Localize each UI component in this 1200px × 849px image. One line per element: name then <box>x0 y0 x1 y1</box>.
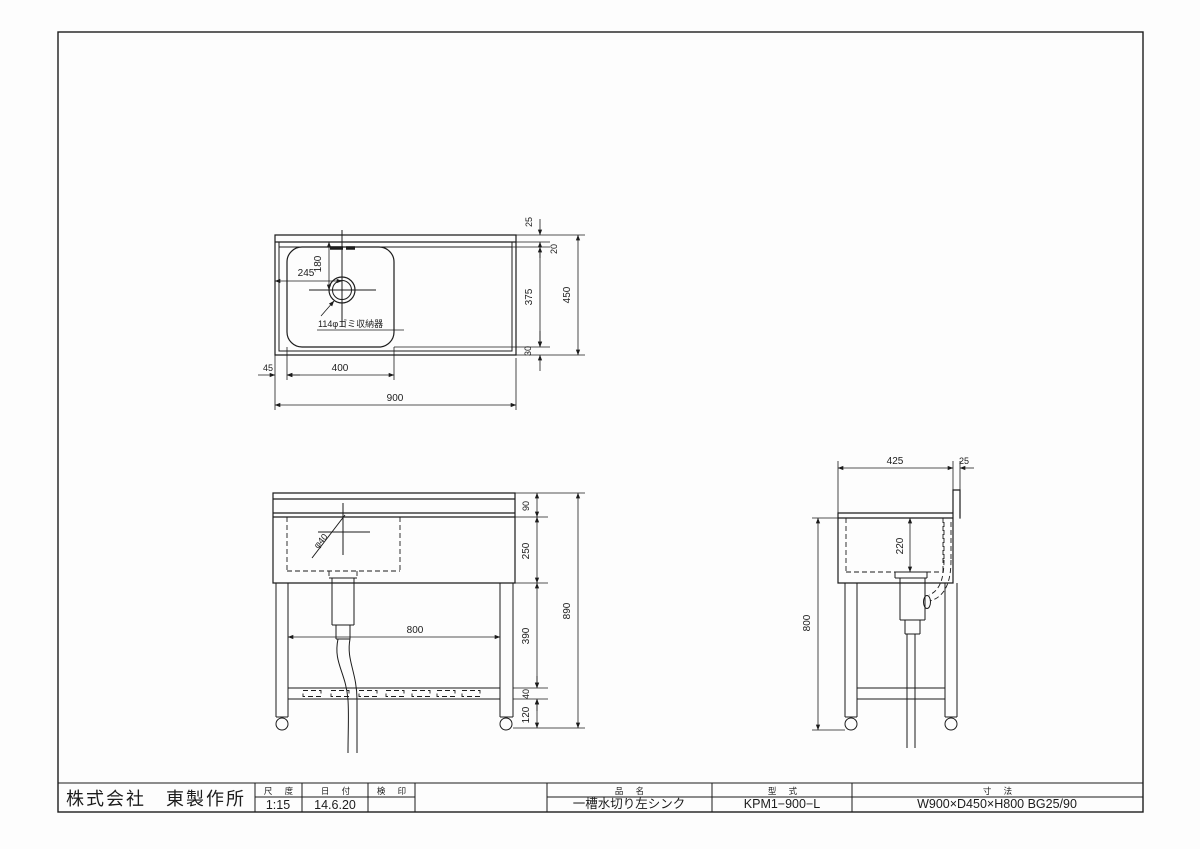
front-view: 90 250 390 40 120 890 800 φ40 <box>273 493 585 753</box>
front-dim-40: 40 <box>521 689 531 699</box>
side-dim-25: 25 <box>959 456 969 466</box>
plan-dim-45: 45 <box>263 363 273 373</box>
plan-dim-375: 375 <box>524 288 535 305</box>
plan-dim-245: 245 <box>298 268 315 279</box>
sheet-border <box>58 32 1143 812</box>
side-dim-220: 220 <box>895 537 906 554</box>
drain-trap-front <box>332 578 354 639</box>
plan-dim-450: 450 <box>562 286 573 303</box>
sink-bowl-plan <box>287 247 394 347</box>
drain-trap-side <box>895 572 927 748</box>
size-label: 寸 法 <box>983 786 1017 796</box>
drain-note: 114φゴミ収納器 <box>318 318 383 329</box>
drawing-sheet: 114φゴミ収納器 25 20 375 30 450 180 245 45 40… <box>0 0 1200 849</box>
plan-dim-20: 20 <box>549 244 559 254</box>
plan-dim-180: 180 <box>313 255 324 272</box>
plan-dim-30: 30 <box>523 346 533 356</box>
plan-dim-900: 900 <box>387 393 404 404</box>
drain-pipe-front <box>337 639 357 753</box>
plan-dim-bg25: 25 <box>524 217 534 227</box>
model-value: KPM1−900−L <box>744 797 820 811</box>
scale-value: 1:15 <box>266 798 290 812</box>
front-dim-800: 800 <box>407 625 424 636</box>
stamp-label: 検 印 <box>377 786 411 796</box>
front-dim-390: 390 <box>521 627 532 644</box>
front-dim-250: 250 <box>521 542 532 559</box>
front-dim-90: 90 <box>521 501 531 511</box>
date-value: 14.6.20 <box>314 798 356 812</box>
technical-drawing: 114φゴミ収納器 25 20 375 30 450 180 245 45 40… <box>0 0 1200 849</box>
company-name: 株式会社 東製作所 <box>66 789 246 809</box>
caster-side-front <box>845 718 857 730</box>
caster-side-back <box>945 718 957 730</box>
scale-label: 尺 度 <box>264 786 298 796</box>
size-value: W900×D450×H800 BG25/90 <box>917 797 1077 811</box>
side-dim-425: 425 <box>887 456 904 467</box>
model-label: 型 式 <box>768 786 802 796</box>
caster-left <box>276 718 288 730</box>
side-dim-800: 800 <box>802 614 813 631</box>
date-label: 日 付 <box>321 786 355 796</box>
side-view: 425 25 220 800 <box>802 456 974 748</box>
caster-right <box>500 718 512 730</box>
drain-centerlines <box>309 230 376 327</box>
legs-shelf-side <box>845 583 957 717</box>
title-block: 株式会社 東製作所 尺 度 1:15 日 付 14.6.20 検 印 品 名 一… <box>58 783 1143 812</box>
plan-view: 114φゴミ収納器 25 20 375 30 450 180 245 45 40… <box>258 217 585 410</box>
front-dim-890: 890 <box>562 602 573 619</box>
front-dim-120: 120 <box>521 706 532 723</box>
product-value: 一槽水切り左シンク <box>573 796 686 811</box>
product-label: 品 名 <box>615 786 649 796</box>
shelf-slots <box>303 691 480 697</box>
front-dim-faucet: φ40 <box>312 532 330 551</box>
faucet-hole-mark <box>312 503 370 558</box>
overflow-pipe-side <box>929 522 951 601</box>
plan-dim-400: 400 <box>332 363 349 374</box>
